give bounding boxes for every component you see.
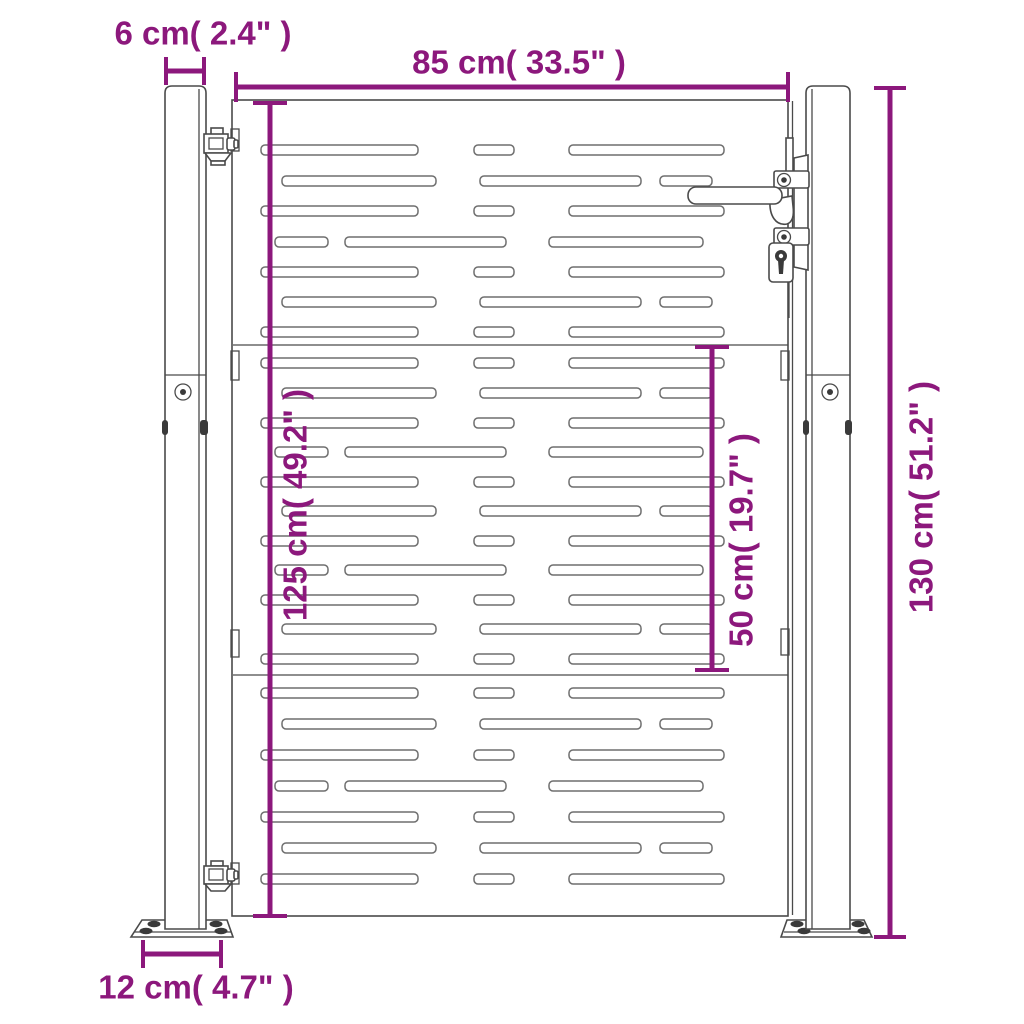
gate-slot: [569, 145, 724, 155]
gate-slot: [549, 447, 703, 457]
gate-slot: [480, 624, 641, 634]
gate-slot: [474, 206, 514, 216]
gate-slot: [660, 624, 712, 634]
gate-slot: [345, 781, 506, 791]
gate-slot: [282, 624, 436, 634]
gate-slot: [474, 536, 514, 546]
gate-slot: [474, 688, 514, 698]
gate-slot: [474, 654, 514, 664]
gate-slot: [474, 418, 514, 428]
gate-slot: [261, 654, 418, 664]
gate-slot: [660, 176, 712, 186]
gate-slot: [282, 176, 436, 186]
gate-slot: [569, 536, 724, 546]
gate-slot: [480, 506, 641, 516]
gate-panel: [231, 100, 793, 916]
gate-slot: [345, 565, 506, 575]
base-plate-width-label: 12 cm( 4.7" ): [98, 971, 293, 1004]
gate-slot: [474, 358, 514, 368]
gate-slot: [474, 267, 514, 277]
gate-slot: [660, 843, 712, 853]
gate-dimension-diagram: 6 cm( 2.4" ) 85 cm( 33.5" ) 130 cm( 51.2…: [0, 0, 1024, 1024]
gate-slot: [275, 237, 328, 247]
gate-slot: [549, 565, 703, 575]
gate-slot: [569, 358, 724, 368]
gate-slot: [282, 719, 436, 729]
total-height-label: 130 cm( 51.2" ): [905, 381, 938, 613]
gate-slot: [569, 267, 724, 277]
gate-slot: [569, 688, 724, 698]
gate-slot: [261, 874, 418, 884]
gate-slot: [261, 267, 418, 277]
gate-slot: [261, 358, 418, 368]
gate-slot: [569, 327, 724, 337]
mid-section-height-label: 50 cm( 19.7" ): [725, 433, 758, 647]
gate-slot: [480, 297, 641, 307]
gate-slot: [474, 595, 514, 605]
gate-slot: [569, 654, 724, 664]
gate-slot: [261, 812, 418, 822]
gate-slot: [275, 781, 328, 791]
gate-slot: [345, 237, 506, 247]
gate-slot: [549, 237, 703, 247]
gate-slot: [345, 447, 506, 457]
gate-slot: [660, 297, 712, 307]
gate-drawing: [0, 0, 1024, 1024]
gate-slot: [474, 145, 514, 155]
gate-slot: [480, 176, 641, 186]
post-width-label: 6 cm( 2.4" ): [114, 17, 291, 50]
dimension-base-plate-width: [143, 940, 221, 968]
gate-slot: [261, 750, 418, 760]
dimension-total-height: [874, 88, 906, 937]
gate-slot: [474, 874, 514, 884]
gate-slot: [569, 750, 724, 760]
gate-slot: [474, 327, 514, 337]
gate-slot: [480, 719, 641, 729]
gate-height-label: 125 cm( 49.2" ): [279, 389, 312, 621]
gate-slot: [660, 388, 712, 398]
gate-slot: [261, 145, 418, 155]
gate-slot: [569, 418, 724, 428]
gate-slot: [660, 506, 712, 516]
gate-slot: [660, 719, 712, 729]
keyhole-icon: [769, 243, 793, 282]
gate-slot: [480, 843, 641, 853]
gate-slot: [282, 843, 436, 853]
gate-slot: [474, 477, 514, 487]
gate-slot: [474, 750, 514, 760]
gate-slot: [569, 206, 724, 216]
gate-slot: [569, 477, 724, 487]
right-post: [803, 86, 852, 929]
left-post: [162, 86, 208, 929]
gate-slot: [569, 595, 724, 605]
gate-slot: [480, 388, 641, 398]
gate-slot: [549, 781, 703, 791]
gate-slot: [569, 874, 724, 884]
gate-slot: [569, 812, 724, 822]
gate-slot: [261, 688, 418, 698]
dimension-post-width: [166, 57, 204, 85]
gate-slot: [261, 327, 418, 337]
gate-width-label: 85 cm( 33.5" ): [412, 46, 626, 79]
gate-slot: [282, 297, 436, 307]
gate-slot: [474, 812, 514, 822]
gate-slot: [261, 206, 418, 216]
